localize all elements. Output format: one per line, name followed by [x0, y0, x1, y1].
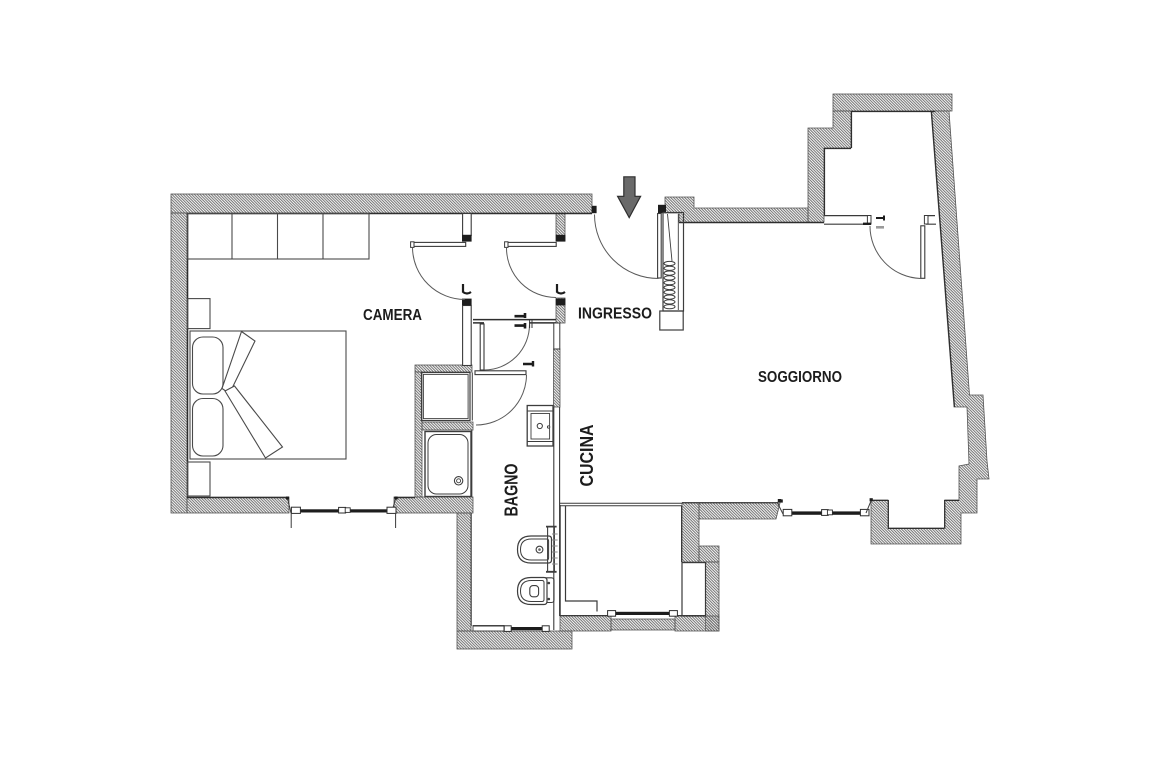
- svg-text:CAMERA: CAMERA: [363, 307, 422, 324]
- svg-text:INGRESSO: INGRESSO: [578, 306, 652, 323]
- svg-text:CUCINA: CUCINA: [577, 425, 597, 487]
- svg-text:SOGGIORNO: SOGGIORNO: [758, 369, 842, 386]
- svg-text:BAGNO: BAGNO: [502, 464, 522, 517]
